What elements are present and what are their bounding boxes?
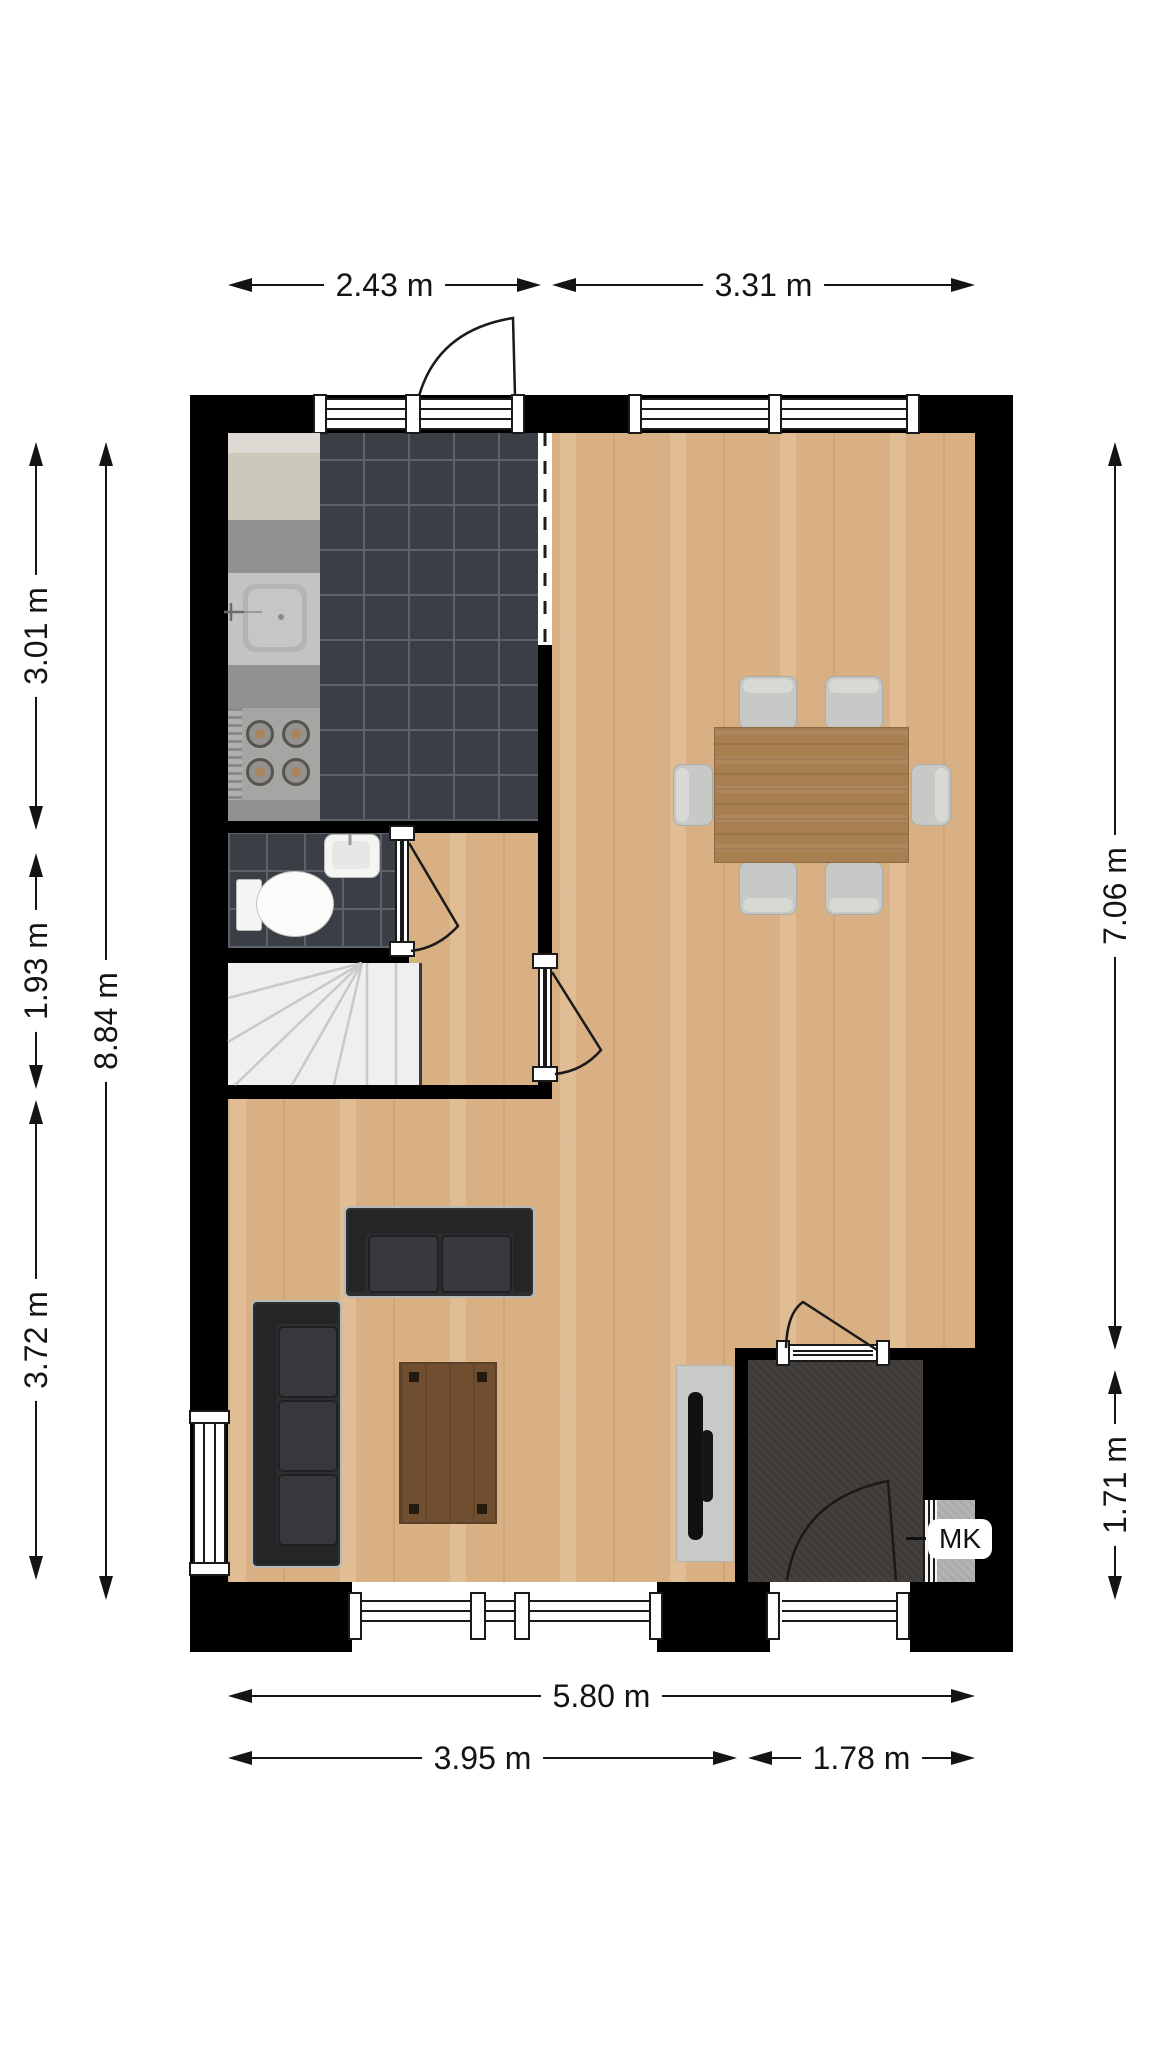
interior-wall: [923, 1348, 1013, 1500]
arrow-right-icon: [951, 1689, 975, 1703]
door-jamb: [532, 953, 558, 969]
interior-wall: [228, 1085, 552, 1099]
kitchen-counter: [228, 665, 320, 708]
wc-hand-sink-basin: [332, 841, 370, 869]
arrow-right-icon: [517, 278, 541, 292]
window-jamb: [189, 1562, 230, 1576]
dimension-left-total: 8.84 m: [91, 442, 121, 1600]
dimension-label: 1.78 m: [801, 1742, 923, 1774]
dimension-label: 3.95 m: [422, 1742, 544, 1774]
sofa-armrest: [513, 1210, 531, 1292]
arrow-right-icon: [29, 1100, 43, 1124]
sofa-armrest: [348, 1210, 366, 1292]
mk-label-leader: [906, 1537, 926, 1540]
sofa-armrest: [255, 1304, 338, 1324]
chair-backrest: [829, 679, 879, 693]
door-jamb: [776, 1340, 790, 1366]
floor-plan-canvas: 2.43 m 3.31 m 3.01 m 1.93 m 3.72 m 8.84 …: [0, 0, 1152, 2048]
front-door-panel-lines: [782, 1600, 898, 1630]
kitchen-cabinet-top: [228, 433, 320, 453]
dimension-label: 1.93 m: [20, 910, 52, 1032]
door-lines: [793, 1350, 873, 1356]
burner-icon: [282, 758, 310, 786]
burner-icon: [282, 720, 310, 748]
dimension-top-2: 3.31 m: [552, 270, 975, 300]
sofa-cushion: [278, 1474, 338, 1546]
meter-cupboard-label: MK: [928, 1519, 992, 1559]
door-mullion: [405, 394, 421, 434]
window-mullion: [768, 394, 782, 434]
sofa-cushion: [278, 1326, 338, 1398]
interior-wall: [735, 1348, 748, 1582]
dimension-label: 2.43 m: [324, 269, 446, 301]
dimension-right-1: 7.06 m: [1100, 442, 1130, 1350]
staircase: [228, 963, 422, 1085]
chair-backrest: [829, 898, 879, 912]
window-jamb: [906, 394, 920, 434]
arrow-right-icon: [29, 853, 43, 877]
arrow-right-icon: [713, 1751, 737, 1765]
chair-backrest: [935, 768, 948, 822]
door-lines: [543, 966, 547, 1069]
tv-mount: [701, 1430, 713, 1502]
chair-backrest: [743, 679, 793, 693]
arrow-right-icon: [951, 278, 975, 292]
table-foot: [409, 1504, 419, 1514]
dining-chair: [739, 861, 797, 915]
window-jamb: [628, 394, 642, 434]
corridor-door-frame: [538, 961, 552, 1074]
kitchen-counter: [228, 800, 320, 821]
toilet: [256, 871, 334, 937]
dimension-label: 7.06 m: [1099, 835, 1131, 957]
arrow-right-icon: [951, 1751, 975, 1765]
window-glass-lines: [352, 1600, 657, 1630]
staircase-edge: [419, 963, 422, 1085]
window-mullion: [514, 1592, 530, 1640]
interior-wall: [228, 948, 409, 963]
hall-floor: [748, 1360, 923, 1582]
stove-grille: [228, 708, 242, 800]
coffee-table: [399, 1362, 497, 1524]
dimension-label: 5.80 m: [541, 1680, 663, 1712]
door-swing-arc: [419, 318, 515, 396]
dimension-bottom-total: 5.80 m: [228, 1681, 975, 1711]
table-foot: [409, 1372, 419, 1382]
sofa-armrest: [255, 1544, 338, 1564]
dimension-left-1: 3.01 m: [21, 442, 51, 830]
dimension-left-3: 3.72 m: [21, 1100, 51, 1580]
kitchen-counter: [228, 520, 320, 573]
dimension-left-2: 1.93 m: [21, 853, 51, 1089]
sofa-3-seat: [251, 1300, 342, 1568]
dimension-right-2: 1.71 m: [1100, 1370, 1130, 1600]
table-foot: [477, 1372, 487, 1382]
dashed-line: [544, 433, 547, 645]
kitchen-sink-basin: [248, 589, 302, 647]
window-jamb: [649, 1592, 663, 1640]
dining-chair: [911, 764, 951, 826]
sofa-cushion: [278, 1400, 338, 1472]
dining-chair: [739, 676, 797, 730]
window: [193, 1418, 226, 1568]
dimension-label: 3.31 m: [703, 269, 825, 301]
window-jamb: [348, 1592, 362, 1640]
hall-door-frame: [788, 1344, 878, 1362]
wc-door-frame: [395, 831, 409, 955]
burner-icon: [246, 758, 274, 786]
arrow-right-icon: [29, 442, 43, 466]
dimension-bottom-1: 3.95 m: [228, 1743, 737, 1773]
door-jamb: [532, 1066, 558, 1082]
chair-backrest: [743, 898, 793, 912]
door-jamb: [389, 825, 415, 841]
dimension-label: 8.84 m: [90, 960, 122, 1082]
sofa-cushion: [441, 1235, 512, 1293]
arrow-right-icon: [99, 442, 113, 466]
door-jamb: [313, 394, 327, 434]
table-foot: [477, 1504, 487, 1514]
dining-table: [714, 727, 909, 863]
stove: [228, 708, 320, 800]
chair-backrest: [676, 768, 689, 822]
arrow-right-icon: [1108, 1370, 1122, 1394]
dimension-top-1: 2.43 m: [228, 270, 541, 300]
arrow-right-icon: [1108, 442, 1122, 466]
sofa-backrest: [255, 1304, 277, 1564]
door-jamb: [511, 394, 525, 434]
kitchen-open-separation: [538, 433, 552, 645]
dimension-label: 1.71 m: [1099, 1424, 1131, 1546]
interior-wall: [538, 645, 552, 963]
window-glass-lines: [203, 1423, 216, 1563]
dining-chair: [673, 764, 713, 826]
dining-chair: [825, 861, 883, 915]
door-lines: [400, 836, 404, 950]
door-jamb: [389, 941, 415, 957]
sofa-backrest: [348, 1210, 531, 1234]
dimension-label: 3.01 m: [20, 575, 52, 697]
dining-chair: [825, 676, 883, 730]
door-jamb: [766, 1592, 780, 1640]
burner-icon: [246, 720, 274, 748]
door-jamb: [896, 1592, 910, 1640]
sofa-2-seat: [344, 1206, 535, 1298]
window-jamb: [189, 1410, 230, 1424]
mk-label-text: MK: [939, 1523, 981, 1555]
sofa-cushion: [368, 1235, 439, 1293]
dimension-label: 3.72 m: [20, 1279, 52, 1401]
door-jamb: [876, 1340, 890, 1366]
dimension-bottom-2: 1.78 m: [748, 1743, 975, 1773]
window-mullion: [470, 1592, 486, 1640]
